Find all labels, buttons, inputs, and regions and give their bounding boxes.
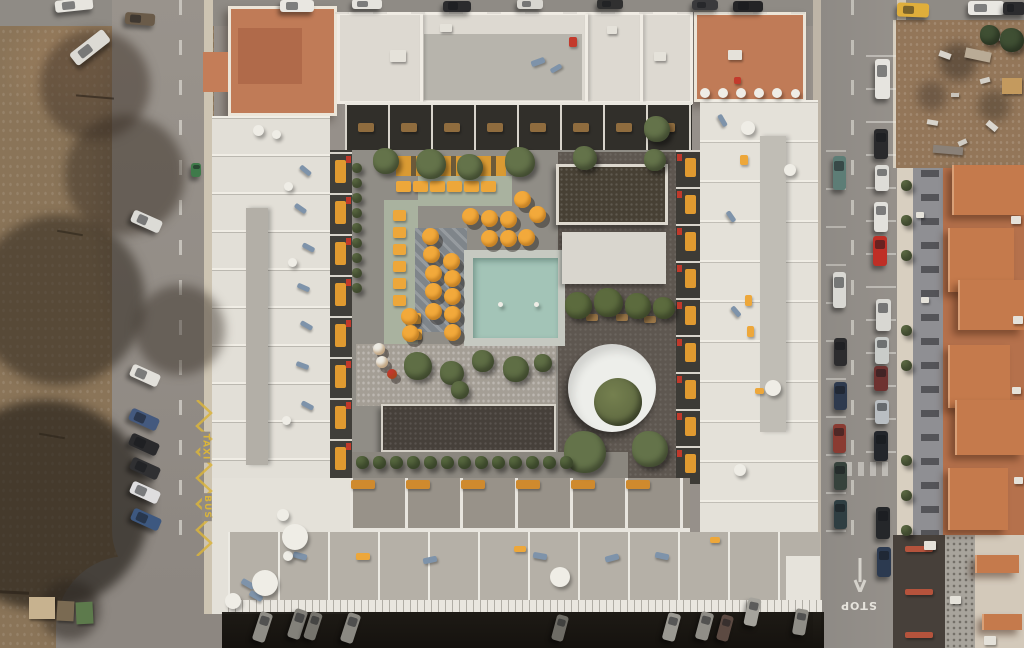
round-table	[718, 88, 728, 98]
parked-car	[834, 338, 847, 366]
tree	[352, 208, 362, 218]
debris	[951, 93, 959, 97]
ac-unit	[984, 636, 996, 645]
windshield	[835, 466, 844, 474]
tree	[509, 456, 522, 469]
ac-unit	[1012, 387, 1021, 394]
parapet-wall	[640, 14, 643, 102]
tiled-roof	[952, 165, 1024, 215]
parasol	[481, 230, 498, 247]
sunbed	[514, 546, 526, 552]
ac-unit	[1013, 316, 1023, 324]
railing	[228, 600, 822, 612]
parasol	[514, 191, 531, 208]
street-terraces	[228, 532, 820, 604]
round-table	[784, 164, 796, 176]
balcony-lounger	[685, 306, 696, 325]
windshield	[130, 14, 141, 22]
windshield	[877, 169, 887, 177]
round-table	[253, 125, 264, 136]
red-awning	[905, 632, 933, 638]
sunbed	[481, 181, 496, 192]
windshield	[876, 133, 886, 142]
ac-unit	[390, 50, 406, 62]
sunbed	[616, 314, 628, 321]
ac-unit	[1014, 477, 1023, 484]
tree	[352, 178, 362, 188]
ac-unit	[728, 50, 742, 60]
debris	[56, 601, 74, 622]
parked-car	[897, 2, 929, 17]
balcony-lounger	[685, 232, 696, 251]
balcony-lounger	[685, 195, 696, 214]
tree	[352, 268, 362, 278]
parked-car	[834, 382, 847, 410]
tree	[356, 456, 369, 469]
terrace-furniture	[573, 123, 589, 132]
orange-bench	[461, 480, 485, 489]
windshield	[134, 436, 147, 448]
red-furniture	[569, 37, 577, 47]
sunbed	[740, 155, 748, 165]
balcony-lounger	[335, 324, 346, 347]
pergola-roof	[556, 164, 668, 225]
windshield	[721, 618, 731, 628]
round-table	[741, 121, 755, 135]
round-table	[272, 130, 281, 139]
balcony-lounger	[685, 343, 696, 362]
tree	[457, 154, 483, 180]
sunbed	[755, 388, 764, 394]
ground-patch	[978, 90, 1010, 122]
tree	[352, 253, 362, 263]
round-table	[277, 509, 289, 521]
windshield	[135, 484, 148, 496]
parasol	[401, 308, 418, 325]
tree	[901, 250, 912, 261]
orange-bench	[351, 480, 375, 489]
balcony-lounger	[335, 242, 346, 265]
round-table	[772, 88, 782, 98]
parked-car	[443, 1, 471, 12]
parked-car	[875, 337, 889, 364]
round-table	[282, 416, 291, 425]
balcony-lounger	[685, 417, 696, 436]
red-cushion	[677, 191, 682, 198]
parasol	[443, 253, 460, 270]
round-table	[284, 182, 293, 191]
stop-road-marking: STOP	[838, 600, 879, 610]
ac-unit	[950, 596, 961, 604]
red-cushion	[677, 302, 682, 309]
windshield	[877, 340, 887, 348]
parasol	[500, 211, 517, 228]
parked-car	[597, 0, 623, 9]
tree	[373, 148, 399, 174]
tree	[543, 456, 556, 469]
parked-car	[833, 156, 846, 190]
parasol	[376, 356, 388, 368]
red-cushion	[677, 450, 682, 457]
round-table	[736, 88, 746, 98]
balcony-lounger	[335, 160, 346, 183]
parked-car	[877, 547, 891, 577]
ground-patch	[917, 81, 947, 111]
sunbed	[393, 278, 406, 289]
swimming-pool	[473, 258, 558, 338]
balcony-lounger	[335, 283, 346, 306]
terracotta-annex	[203, 52, 228, 92]
tree	[901, 455, 912, 466]
parasol	[444, 288, 461, 305]
balcony-lounger	[335, 406, 346, 429]
terrace-furniture	[487, 123, 503, 132]
windshield	[134, 411, 147, 423]
round-table	[283, 551, 293, 561]
sunbed	[393, 261, 406, 272]
sunbed	[710, 537, 720, 543]
windshield	[877, 65, 888, 77]
sunbed	[747, 326, 754, 337]
tree	[503, 356, 529, 382]
parasol	[425, 283, 442, 300]
sunbed	[430, 181, 445, 192]
windshield	[258, 615, 269, 626]
tree	[475, 456, 488, 469]
windshield	[876, 369, 886, 377]
round-table	[534, 302, 539, 307]
tree	[416, 149, 446, 179]
parked-car	[834, 500, 847, 529]
red-cushion	[677, 265, 682, 272]
tree	[441, 456, 454, 469]
windshield	[286, 2, 298, 10]
windshield	[974, 4, 986, 13]
windshield	[135, 460, 148, 472]
tree	[534, 354, 552, 372]
ac-unit	[916, 212, 924, 218]
parked-car	[692, 0, 718, 10]
windshield	[602, 1, 611, 7]
windshield	[878, 511, 888, 521]
windshield	[556, 618, 566, 628]
sunbed	[393, 295, 406, 306]
terracotta-roof-patio	[238, 28, 302, 84]
sunbed	[356, 553, 370, 560]
tree	[901, 360, 912, 371]
round-table	[700, 88, 710, 98]
windshield	[1007, 4, 1014, 12]
parked-car	[833, 272, 846, 308]
tree	[644, 149, 666, 171]
parked-car	[352, 0, 382, 9]
round-table	[498, 302, 503, 307]
red-cushion	[346, 320, 351, 327]
round-table	[791, 89, 800, 98]
windshield	[667, 616, 678, 626]
tiled-roof	[948, 468, 1008, 530]
balcony-lounger	[685, 380, 696, 399]
red-awning	[905, 589, 933, 595]
tree	[901, 180, 912, 191]
roof-strip	[246, 208, 268, 465]
parked-car	[875, 400, 889, 424]
balcony-lounger	[685, 269, 696, 288]
tree	[407, 456, 420, 469]
ac-unit	[921, 297, 929, 303]
ac-unit	[440, 24, 452, 32]
parasol	[444, 270, 461, 287]
parasol	[373, 343, 385, 355]
sunbed	[393, 244, 406, 255]
sunbed	[393, 227, 406, 238]
windshield	[346, 616, 357, 627]
ac-unit	[1011, 216, 1021, 224]
orange-bench	[626, 480, 650, 489]
tree	[352, 193, 362, 203]
parasol	[462, 208, 479, 225]
windshield	[835, 504, 844, 513]
parasol	[402, 325, 419, 342]
red-cushion	[346, 402, 351, 409]
tree	[901, 525, 912, 536]
parasol	[387, 369, 397, 379]
zigzag-marking	[192, 400, 216, 556]
parasol	[529, 206, 546, 223]
ac-unit	[654, 52, 666, 61]
windshield	[135, 213, 148, 225]
parasol	[423, 246, 440, 263]
sunbed	[393, 210, 406, 221]
red-cushion	[346, 238, 351, 245]
parasol	[422, 228, 439, 245]
red-cushion	[677, 339, 682, 346]
parasol	[425, 265, 442, 282]
parked-car	[874, 431, 888, 461]
parked-car	[733, 1, 763, 12]
parasol	[500, 230, 517, 247]
red-cushion	[677, 413, 682, 420]
parked-car	[874, 366, 888, 391]
tree	[352, 283, 362, 293]
red-cushion	[677, 154, 682, 161]
pergola-slats	[396, 156, 506, 176]
round-table	[225, 593, 241, 609]
debris	[29, 597, 55, 619]
windshield	[310, 615, 321, 626]
tree	[424, 456, 437, 469]
tree	[594, 288, 623, 317]
tree	[901, 215, 912, 226]
round-table	[754, 88, 764, 98]
tree	[901, 325, 912, 336]
windshield	[697, 2, 706, 8]
ground-patch	[135, 285, 225, 375]
windshield	[835, 386, 844, 394]
red-cushion	[677, 376, 682, 383]
terrace-furniture	[616, 123, 632, 132]
parapet-wall	[420, 14, 423, 102]
parasol	[425, 303, 442, 320]
parked-car	[876, 299, 891, 331]
tree	[901, 490, 912, 501]
windshield	[877, 403, 887, 410]
sunbed	[396, 181, 411, 192]
ac-unit	[607, 26, 617, 34]
windshield	[193, 165, 200, 169]
red-cushion	[346, 361, 351, 368]
hotel-right-wing	[700, 100, 818, 560]
parked-car	[875, 59, 890, 99]
tree	[472, 350, 494, 372]
terrace-furniture	[444, 123, 460, 132]
red-cushion	[346, 279, 351, 286]
parked-car	[125, 12, 156, 26]
parasol	[444, 306, 461, 323]
red-cushion	[346, 443, 351, 450]
balcony-lounger	[335, 365, 346, 388]
tree	[352, 238, 362, 248]
parked-car	[280, 0, 314, 12]
terrace-furniture	[358, 123, 374, 132]
windshield	[293, 612, 304, 623]
lane-divider	[179, 0, 182, 540]
windshield	[878, 303, 889, 313]
tree	[492, 456, 505, 469]
balcony-lounger	[685, 158, 696, 177]
orange-bench	[516, 480, 540, 489]
windshield	[748, 601, 759, 611]
windshield	[796, 612, 806, 621]
round-table	[288, 258, 297, 267]
windshield	[522, 1, 531, 7]
windshield	[135, 367, 148, 379]
windshield	[834, 161, 843, 171]
tree	[505, 147, 535, 177]
terrace-furniture	[401, 123, 417, 132]
windshield	[876, 435, 886, 444]
windshield	[61, 1, 75, 10]
parasol	[444, 324, 461, 341]
terrace-furniture	[530, 123, 546, 132]
tree	[451, 381, 469, 399]
tree	[1000, 28, 1024, 52]
cream-building	[975, 535, 1024, 648]
balcony-lounger	[335, 447, 346, 470]
taxi-road-marking: TAXI	[200, 432, 210, 463]
windshield	[879, 551, 889, 560]
facade-windows	[921, 170, 939, 558]
tree	[625, 293, 651, 319]
round-table	[252, 570, 278, 596]
sunbed	[413, 181, 428, 192]
round-table	[282, 524, 308, 550]
windshield	[834, 428, 843, 437]
round-planter-tree	[594, 378, 642, 426]
windshield	[903, 5, 914, 14]
parked-car	[968, 1, 1004, 15]
tree	[352, 223, 362, 233]
parapet-wall	[585, 14, 588, 102]
parasol	[481, 210, 498, 227]
windshield	[136, 511, 149, 523]
balcony-lounger	[685, 454, 696, 473]
tree	[373, 456, 386, 469]
ac-unit	[924, 541, 936, 550]
tree	[352, 163, 362, 173]
tree	[458, 456, 471, 469]
tiled-roof	[948, 345, 1010, 408]
parked-car	[874, 202, 888, 232]
windshield	[834, 277, 843, 288]
tree	[573, 146, 597, 170]
parked-car	[1003, 2, 1024, 15]
tiled-roof	[975, 555, 1019, 573]
courtyard-paving	[945, 535, 975, 648]
tree	[653, 297, 675, 319]
tree	[980, 25, 1000, 45]
tree	[632, 431, 668, 467]
round-table	[734, 464, 746, 476]
sunbed	[464, 181, 479, 192]
aerial-photo: TAXI BUS STOP	[0, 0, 1024, 648]
windshield	[876, 206, 886, 215]
tree	[390, 456, 403, 469]
roof-terrace-row	[345, 102, 692, 150]
debris	[75, 602, 93, 625]
white-roof	[562, 232, 666, 284]
parked-car	[833, 424, 846, 453]
parked-car	[874, 129, 888, 159]
tiled-roof	[955, 400, 1024, 455]
tree	[565, 292, 592, 319]
red-cushion	[677, 228, 682, 235]
bus-road-marking: BUS	[202, 493, 212, 521]
parked-car	[873, 236, 887, 266]
parasol	[518, 229, 535, 246]
red-furniture	[734, 77, 741, 84]
debris	[1002, 78, 1022, 94]
tiled-roof	[982, 614, 1022, 630]
round-table	[550, 567, 570, 587]
dark-roof	[381, 404, 556, 452]
red-cushion	[346, 197, 351, 204]
sunbed	[447, 181, 462, 192]
orange-bench	[571, 480, 595, 489]
parked-car	[875, 165, 889, 191]
windshield	[835, 342, 844, 350]
tree	[404, 352, 432, 380]
balcony-lounger	[335, 201, 346, 224]
terracotta-building	[694, 12, 806, 102]
straight-arrow-marking	[853, 558, 867, 592]
windshield	[700, 615, 711, 625]
windshield	[448, 2, 458, 9]
parked-car	[834, 462, 847, 490]
windshield	[738, 2, 748, 9]
parked-car	[517, 0, 543, 9]
parked-car	[191, 163, 201, 177]
tree	[644, 116, 670, 142]
windshield	[875, 240, 885, 249]
parked-car	[876, 507, 890, 539]
tree	[560, 456, 573, 469]
orange-bench	[406, 480, 430, 489]
round-table	[765, 380, 781, 396]
tree	[526, 456, 539, 469]
sunbed	[745, 295, 752, 306]
windshield	[357, 1, 367, 7]
